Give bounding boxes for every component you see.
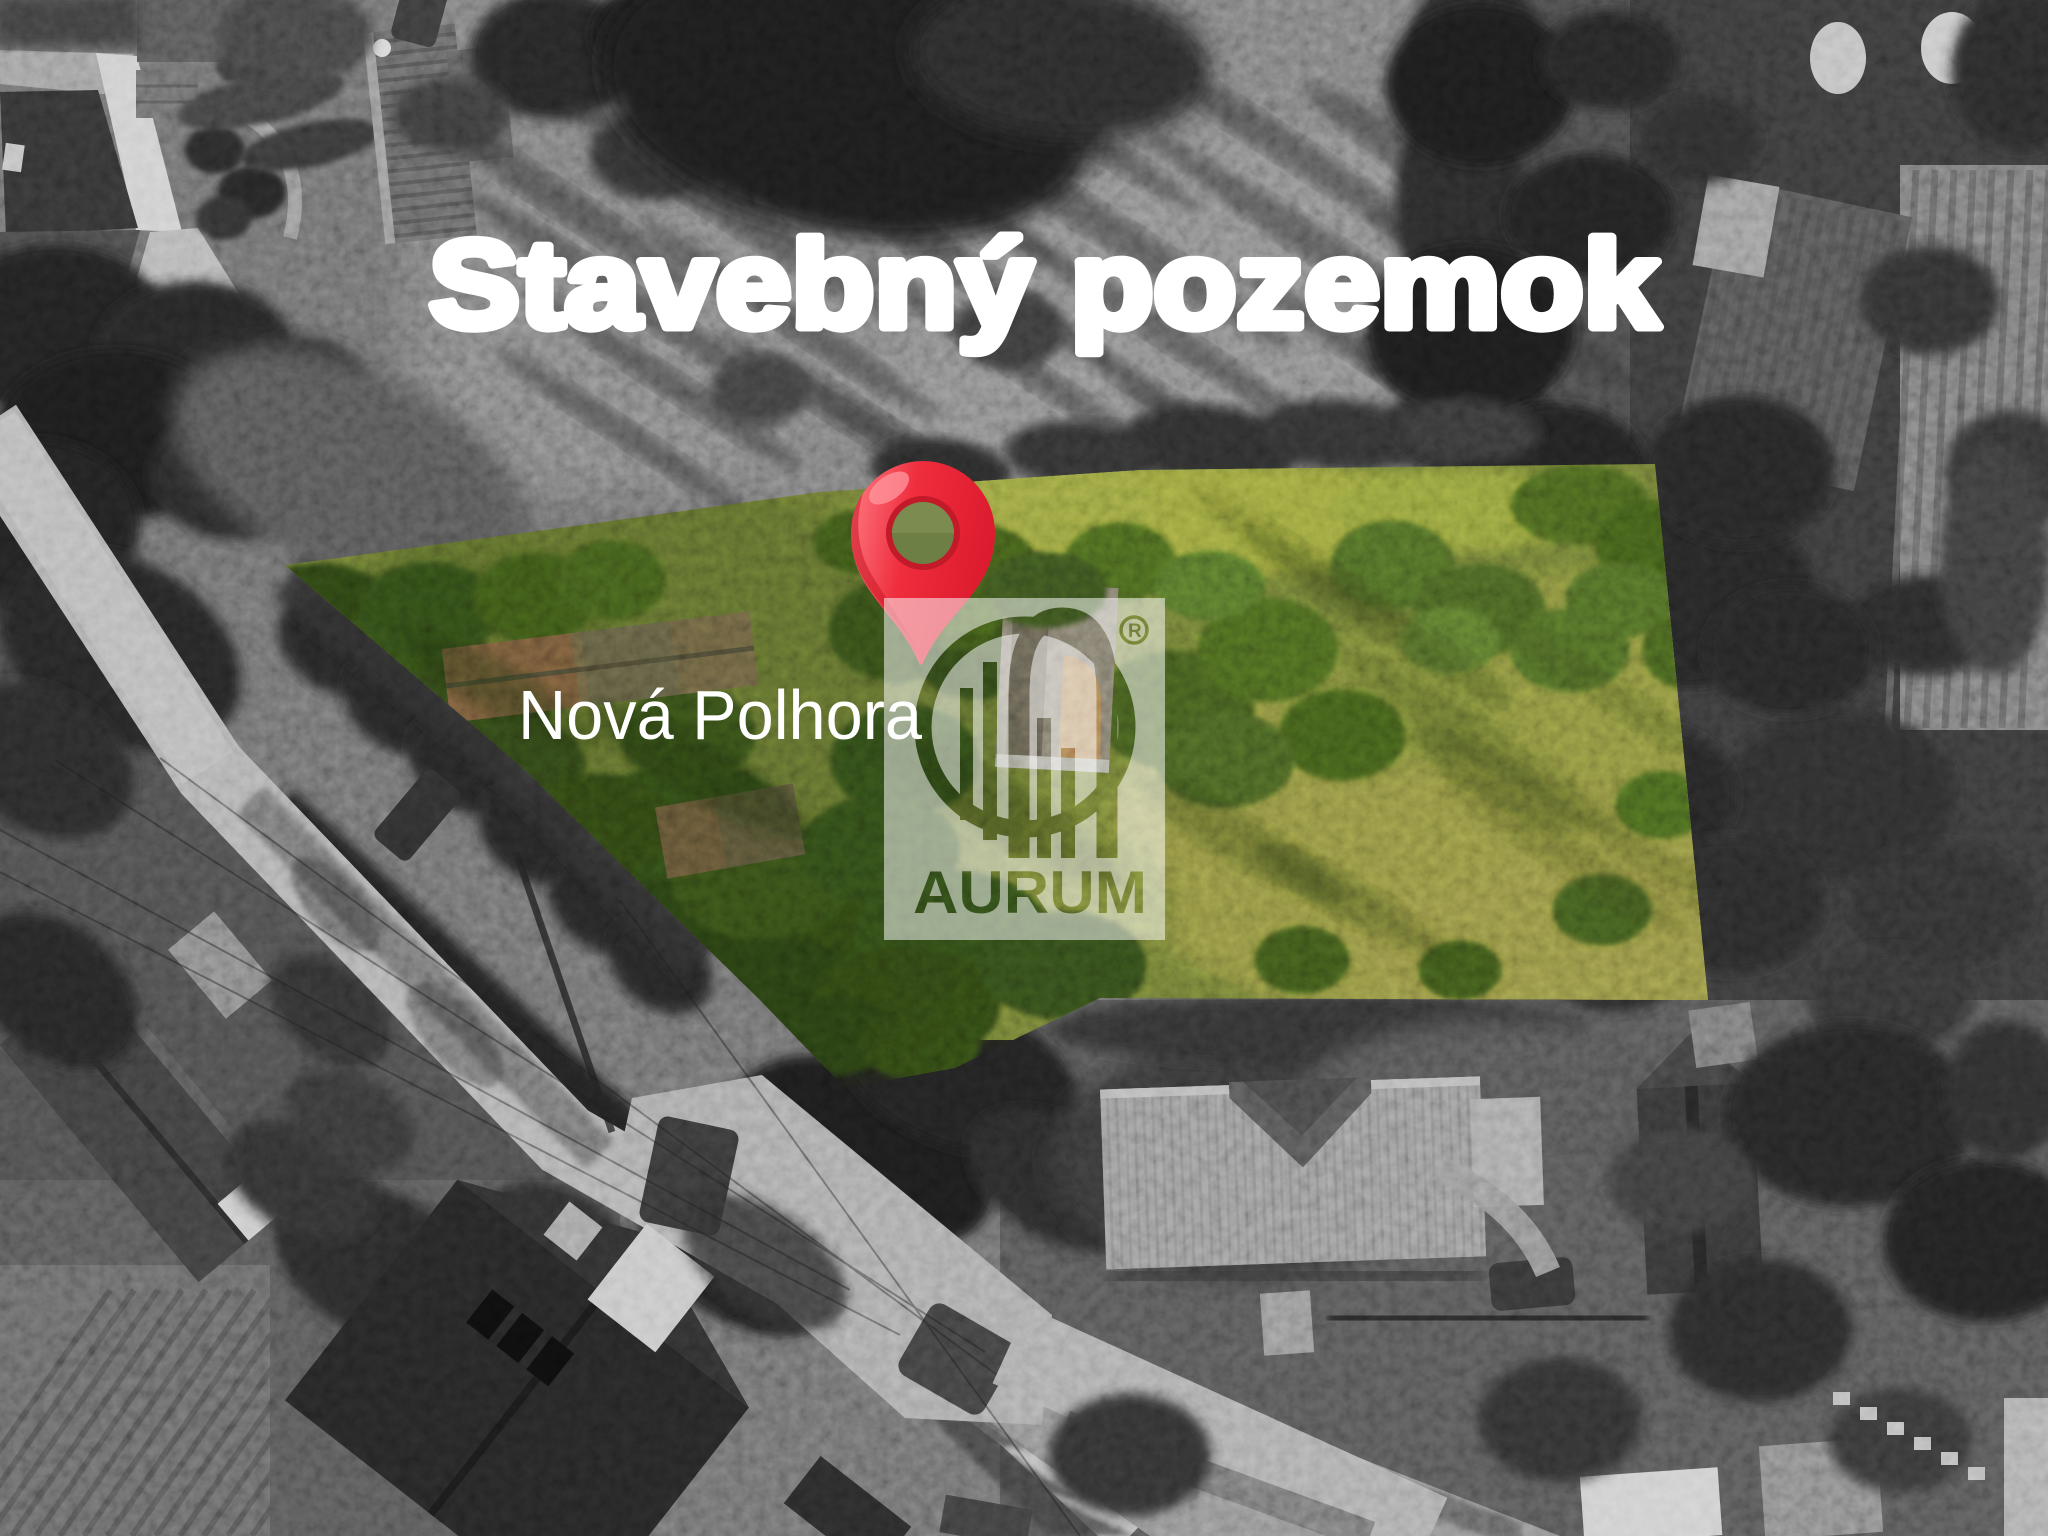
svg-text:Stavebný pozemok: Stavebný pozemok [429, 216, 1660, 354]
svg-text:Nová Polhora: Nová Polhora [518, 676, 922, 754]
